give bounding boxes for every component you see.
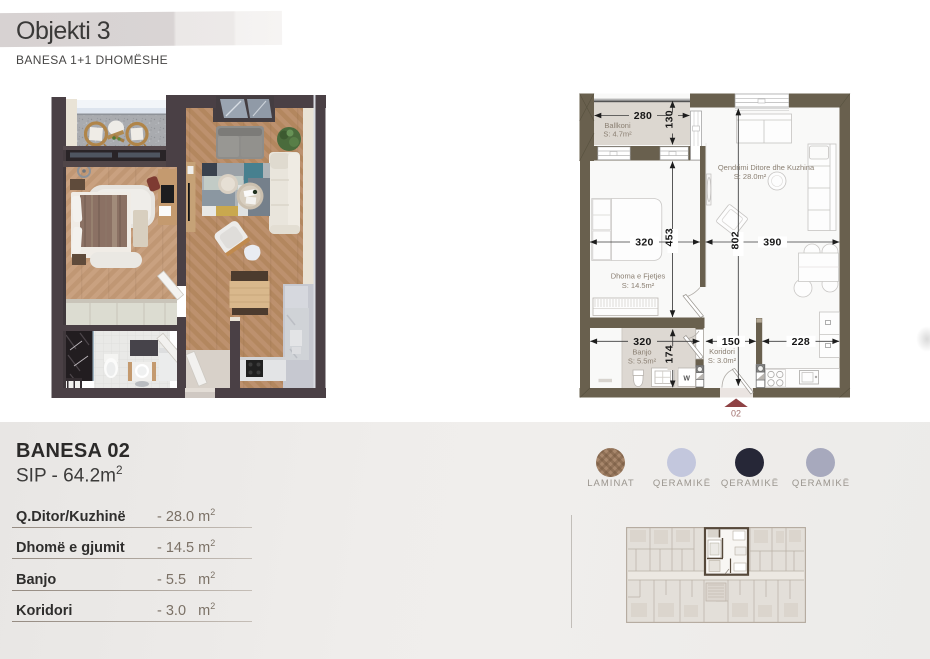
svg-text:320: 320 (635, 237, 653, 249)
svg-text:W: W (683, 376, 690, 383)
svg-text:174: 174 (664, 345, 676, 363)
svg-text:S: 14.5m²: S: 14.5m² (622, 281, 655, 290)
svg-text:02: 02 (731, 409, 741, 419)
svg-text:228: 228 (792, 336, 810, 348)
svg-text:S: 4.7m²: S: 4.7m² (603, 130, 632, 139)
svg-text:Qendrimi Ditore dhe Kuzhina: Qendrimi Ditore dhe Kuzhina (718, 163, 815, 172)
svg-text:130: 130 (664, 110, 676, 128)
svg-text:Dhoma e Fjetjes: Dhoma e Fjetjes (611, 272, 666, 281)
svg-text:320: 320 (633, 336, 651, 348)
svg-text:S: 5.5m²: S: 5.5m² (628, 357, 657, 366)
svg-text:Koridori: Koridori (709, 347, 735, 356)
svg-text:280: 280 (634, 110, 652, 122)
svg-text:S: 3.0m²: S: 3.0m² (708, 356, 737, 365)
svg-text:390: 390 (763, 237, 781, 249)
svg-text:802: 802 (729, 231, 741, 249)
svg-text:453: 453 (664, 228, 676, 246)
svg-text:S: 28.0m²: S: 28.0m² (734, 172, 767, 181)
svg-text:Banjo: Banjo (632, 348, 651, 357)
